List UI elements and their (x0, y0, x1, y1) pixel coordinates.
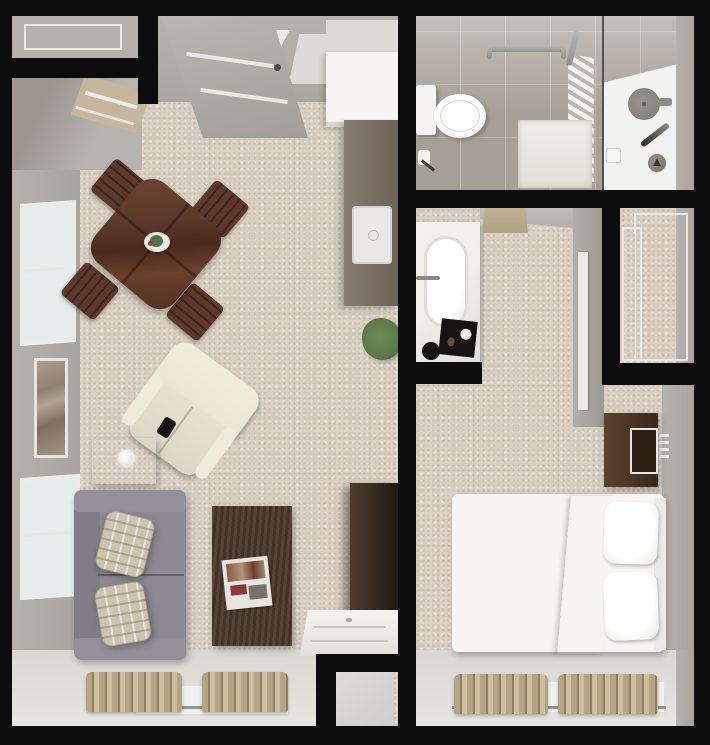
toilet-seat-line (440, 100, 480, 132)
nightstand-shelf (630, 428, 658, 474)
closet-interior (620, 207, 694, 365)
tray-amber-dot (447, 337, 455, 347)
wall-nook-left (316, 654, 336, 728)
window-mullion (24, 267, 64, 273)
tray-white-dot (460, 328, 472, 340)
black-tray (438, 318, 478, 358)
wall-closet-bottom (602, 363, 710, 385)
window-left-lower (20, 474, 80, 600)
window-left-upper (20, 200, 76, 346)
white-desk (300, 610, 398, 656)
desk-drawer-line-2 (310, 640, 388, 642)
door-trim-line-2 (200, 88, 288, 104)
closet-floor-strip (626, 233, 635, 355)
vanity-counter (416, 222, 480, 364)
magazine-red-detail (230, 584, 247, 596)
kitchen-counter (344, 120, 398, 306)
closet-sliding-door-frame-outer (634, 213, 688, 361)
centerpiece-flower (148, 241, 153, 246)
toilet-tank (416, 85, 436, 135)
sofa-backrest (74, 490, 100, 660)
bed-pillow-2 (603, 571, 659, 641)
suite-door-mat (482, 207, 528, 233)
sofa-pillow-2 (93, 580, 153, 648)
wall-vanity-stub (398, 362, 482, 384)
wall-outer-top (0, 0, 710, 16)
bath-mat (518, 120, 592, 188)
magazine-stack (222, 556, 273, 611)
bedroom-right-wall-face (662, 385, 694, 650)
open-door-panel (578, 252, 588, 410)
living-curtain-right (202, 672, 288, 712)
shower-glass-partition (602, 16, 604, 190)
wall-outer-bottom (0, 726, 710, 745)
entry-door-frame (24, 24, 122, 50)
vanity-faucet (416, 276, 440, 280)
shower-valve (648, 154, 666, 172)
refrigerator (326, 52, 398, 127)
living-curtain-left (86, 672, 182, 712)
black-bowl (422, 342, 440, 360)
desk-knob (346, 618, 352, 622)
vanity-sink-basin (424, 236, 468, 328)
soap-dish (606, 148, 621, 163)
table-centerpiece (144, 232, 170, 252)
sofa-arm-top (74, 490, 186, 512)
magazine-gray-detail (248, 584, 267, 600)
nightstand (604, 413, 658, 487)
media-cabinet (350, 483, 398, 619)
entry-threshold-line (85, 91, 138, 110)
magazine-cover-art (226, 560, 266, 582)
coffee-table (212, 506, 292, 646)
shower-head-center-dot (642, 102, 646, 106)
wall-entry-alcove-right (138, 16, 158, 104)
wall-bathroom-bottom (398, 190, 710, 208)
kitchen-sink (352, 206, 392, 264)
bedroom-curtain-left (454, 674, 548, 714)
grab-bar-end-right (561, 46, 566, 59)
grab-bar-horizontal (488, 46, 566, 52)
kitchen-upper-cabinet (326, 20, 398, 54)
door-trim-line-1 (186, 52, 274, 68)
entry-door-alcove (14, 16, 138, 58)
window-mullion-2 (24, 531, 68, 537)
table-lamp (118, 450, 135, 467)
shower-arm (658, 98, 672, 106)
toilet-bowl (434, 94, 486, 138)
storage-nook-floor (336, 672, 394, 726)
door-handle (274, 64, 281, 71)
bedroom-curtain-right (558, 674, 658, 714)
valve-lever (653, 158, 661, 166)
bed-pillow-1 (603, 501, 659, 565)
sink-drain-icon (368, 230, 379, 241)
side-table (92, 438, 156, 484)
wall-entry-alcove-bottom (0, 58, 150, 78)
nightstand-lamp-glint (659, 432, 669, 458)
bed-duvet (455, 497, 576, 651)
wall-outer-left (0, 0, 12, 745)
grab-bar-end-left (487, 46, 492, 59)
potted-plant (362, 318, 402, 360)
wall-closet-left (602, 205, 620, 385)
desk-drawer-line-1 (314, 626, 386, 628)
shower-head (628, 88, 660, 120)
wall-art (34, 358, 68, 458)
floor-plan-canvas (0, 0, 710, 745)
